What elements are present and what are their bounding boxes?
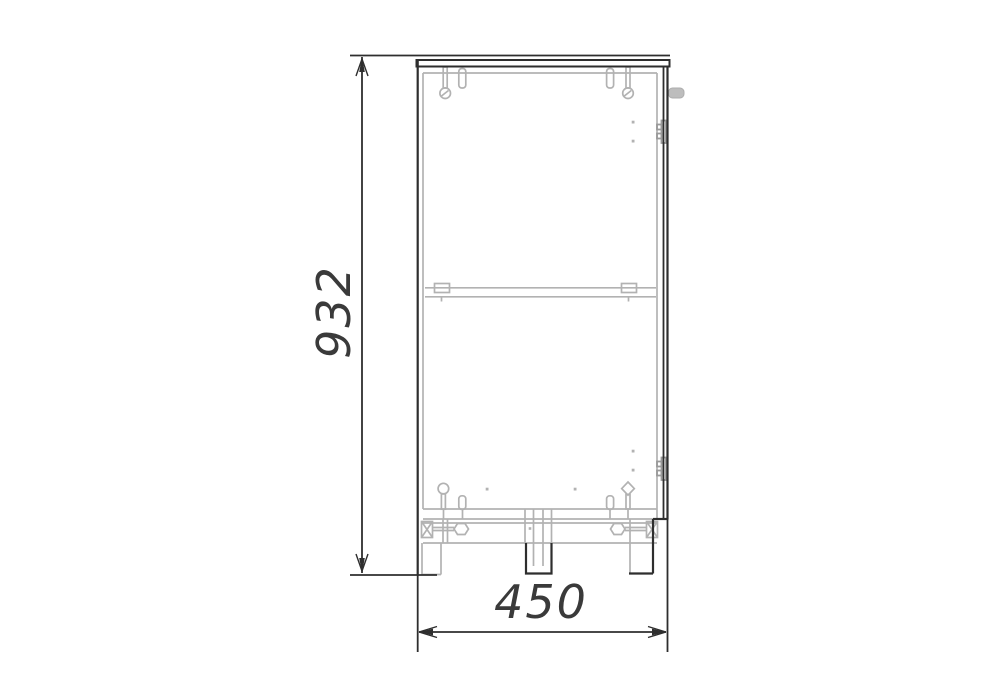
screw-shaft (626, 495, 630, 510)
top-fasteners (440, 67, 633, 98)
dowel (607, 496, 614, 510)
pilot-dot (529, 527, 532, 530)
shelf (425, 284, 656, 302)
screw-shaft (441, 494, 445, 509)
cabinet-outline (417, 60, 670, 575)
bottom-panel (423, 509, 657, 519)
bolt-right (611, 524, 647, 535)
dowel (607, 69, 614, 89)
drill-dots (486, 121, 635, 491)
drawing-page: 932 450 (0, 0, 1000, 700)
dowel (459, 496, 466, 510)
hinge-top (657, 121, 666, 144)
width-dimension-label: 450 (494, 575, 588, 629)
bolt-left (433, 524, 469, 535)
screw-shaft (443, 67, 447, 88)
screw-head-angled (622, 482, 635, 495)
center-leg (526, 543, 552, 574)
left-leg (422, 543, 441, 575)
top-panel (417, 60, 670, 67)
center-leg-inner (534, 543, 544, 566)
height-dimension-label: 932 (307, 265, 361, 359)
screw-shaft (626, 67, 630, 88)
corner-bracket-left (422, 522, 433, 538)
screw-head (438, 483, 449, 494)
door-handle (669, 88, 685, 98)
dowel (459, 69, 466, 89)
height-dimension: 932 (307, 56, 670, 576)
plinth-rail (423, 509, 657, 543)
cabinet-side-elevation-drawing: 932 450 (0, 0, 1000, 700)
bottom-fasteners (438, 482, 634, 509)
hinge-bottom (657, 458, 666, 481)
